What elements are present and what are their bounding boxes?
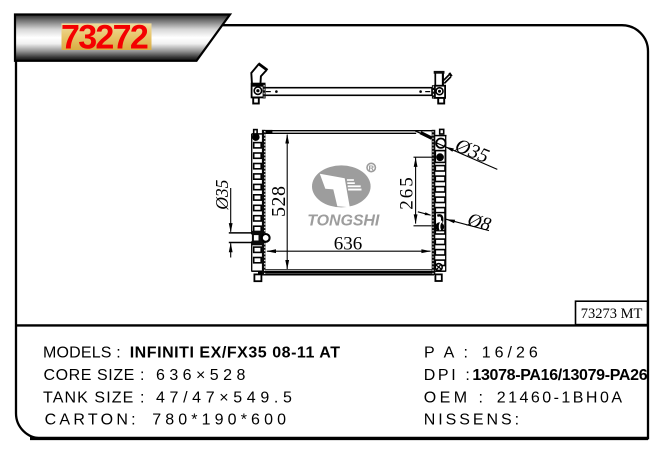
svg-text:73272: 73272: [61, 19, 148, 57]
svg-text:MODELS :INFINITI EX/FX35 08-11: MODELS :INFINITI EX/FX35 08-11 AT: [43, 344, 340, 361]
svg-text:Ø35: Ø35: [212, 179, 232, 210]
svg-text:DPI :13078-PA16/13079-PA26: DPI :13078-PA16/13079-PA26: [424, 367, 648, 384]
svg-text:636: 636: [334, 233, 363, 254]
svg-text:OEM :21460-1BH0A: OEM :21460-1BH0A: [424, 389, 623, 406]
svg-text:265: 265: [397, 175, 418, 210]
svg-text:R: R: [368, 163, 374, 172]
svg-text:528: 528: [268, 186, 290, 218]
svg-text:73273 MT: 73273 MT: [581, 306, 643, 322]
svg-text:TONGSHI: TONGSHI: [307, 213, 380, 230]
